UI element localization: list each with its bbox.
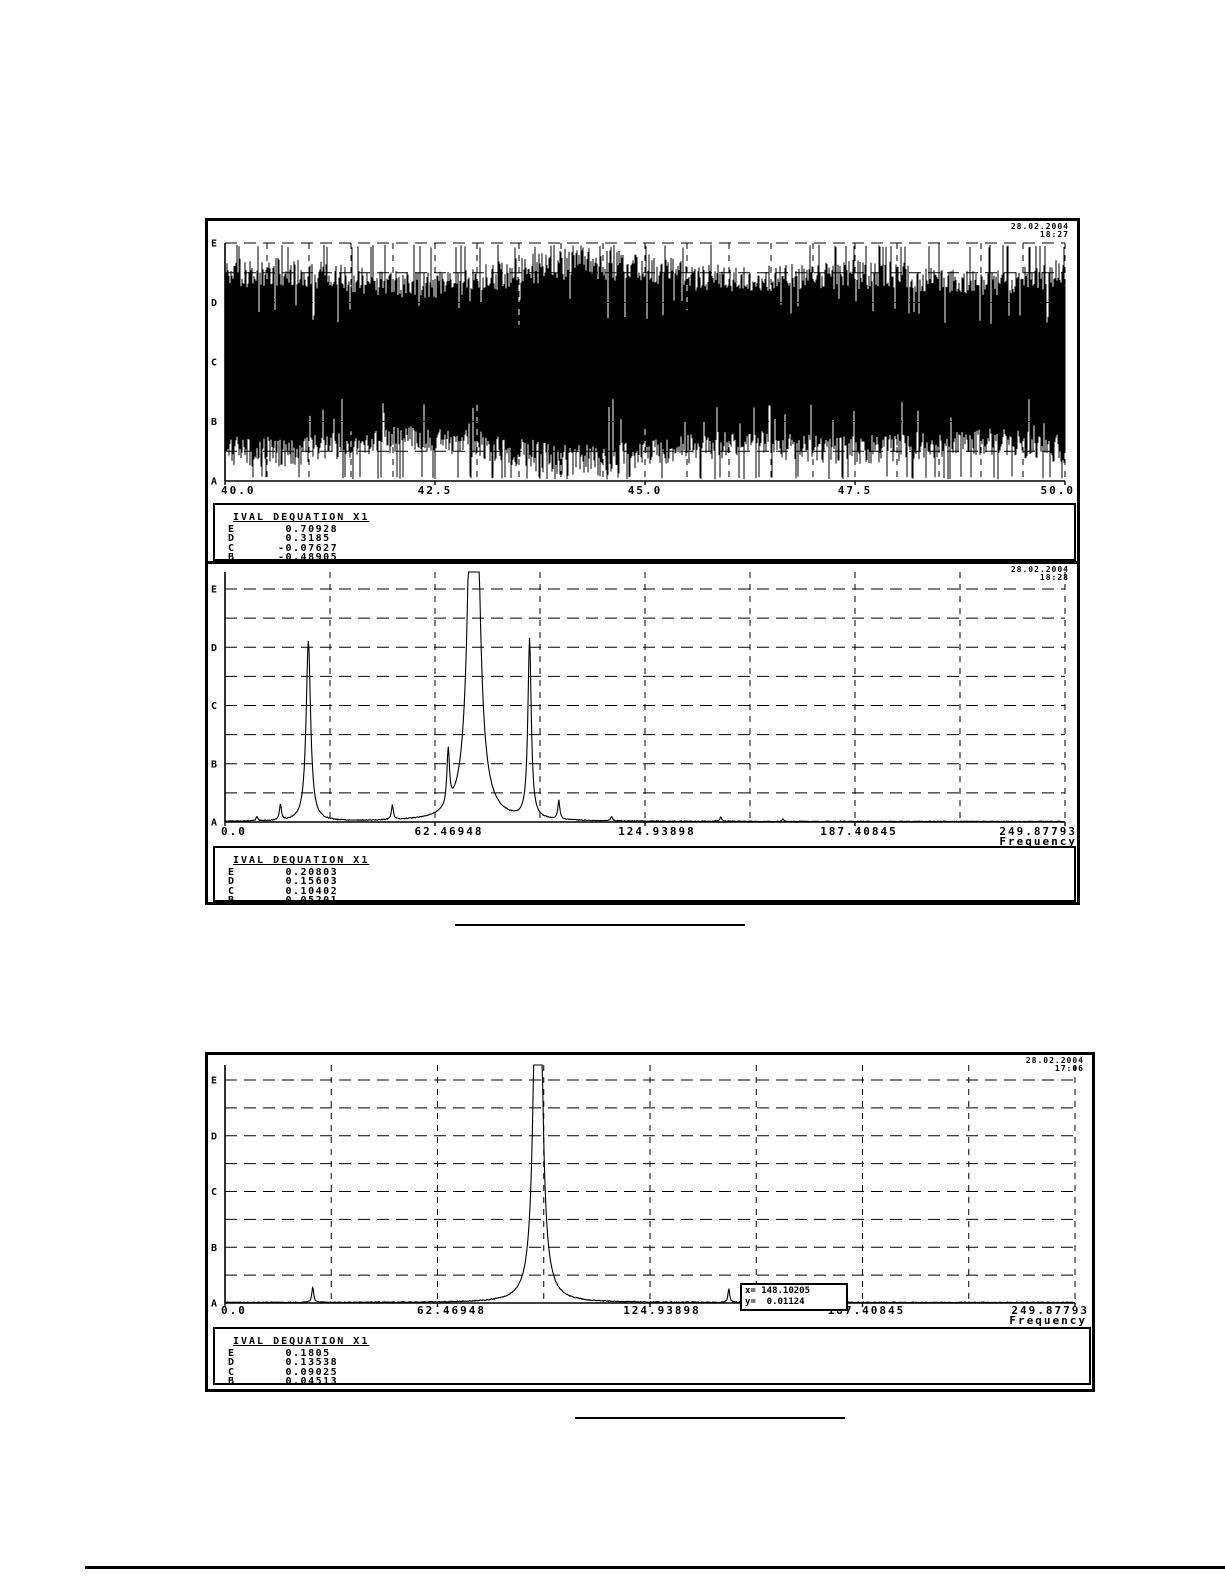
spectrum-chart-1: 0.062.46948124.93898187.40845249.87793ED… — [208, 564, 1077, 848]
legend-title: IVAL DEQUATION X1 — [233, 855, 369, 866]
y-level-label: D — [211, 298, 217, 309]
x-tick-label: 50.0 — [1041, 484, 1076, 497]
legend-row: C 0.09025 — [215, 1368, 1089, 1377]
caption-underline-2 — [575, 1417, 845, 1419]
x-tick-label: 0.0 — [221, 1304, 247, 1317]
caption-underline-1 — [455, 924, 745, 926]
legend-key: C — [215, 544, 278, 553]
y-level-label: A — [211, 477, 217, 488]
cursor-readout-box: x= 148.10205y= 0.01124 — [740, 1283, 848, 1311]
legend-key: C — [215, 1368, 278, 1377]
x-tick-label: 47.5 — [838, 484, 873, 497]
legend-row: E 0.20803 — [215, 868, 1074, 877]
legend-value: 0.04513 — [278, 1377, 338, 1385]
cursor-x-value: x= 148.10205 — [745, 1286, 810, 1296]
legend-row: E 0.70928 — [215, 525, 1074, 534]
spectrum2-frame: 28.02.200417:06 0.062.46948124.93898187.… — [205, 1052, 1095, 1392]
y-level-label: C — [211, 358, 217, 369]
x-tick-label: 40.0 — [221, 484, 256, 497]
legend-row: D 0.3185 — [215, 534, 1074, 543]
cursor-y-value: y= 0.01124 — [745, 1297, 805, 1307]
x-tick-label: 124.93898 — [618, 825, 696, 838]
y-level-label: A — [211, 818, 217, 829]
legend-row: D 0.13538 — [215, 1358, 1089, 1367]
y-level-label: D — [211, 643, 217, 654]
legend-panel3: IVAL DEQUATION X1 E 0.1805 D 0.13538 C 0… — [213, 1327, 1091, 1385]
x-tick-label: 124.93898 — [623, 1304, 701, 1317]
y-level-label: B — [211, 1243, 217, 1254]
document-page: 28.02.200418:27 40.042.545.047.550.0EDCB… — [0, 0, 1225, 1585]
x-tick-label: 62.46948 — [415, 825, 484, 838]
legend-key: D — [215, 534, 278, 543]
y-level-label: A — [211, 1299, 217, 1310]
y-level-label: C — [211, 1187, 217, 1198]
legend-key: E — [215, 525, 278, 534]
legend-key: B — [215, 553, 278, 561]
x-tick-label: 45.0 — [628, 484, 663, 497]
legend-value: 0.05201 — [278, 896, 338, 902]
legend-key: D — [215, 1358, 278, 1367]
legend-value: -0.48905 — [278, 553, 338, 561]
y-level-label: E — [211, 585, 217, 596]
legend-row: D 0.15603 — [215, 877, 1074, 886]
x-axis-title: Frequency — [1009, 1314, 1087, 1327]
x-tick-label: 62.46948 — [417, 1304, 486, 1317]
y-level-label: B — [211, 417, 217, 428]
waveform-chart: 40.042.545.047.550.0EDCBA — [208, 221, 1077, 503]
legend-row: E 0.1805 — [215, 1349, 1089, 1358]
x-tick-label: 187.40845 — [820, 825, 898, 838]
y-level-label: B — [211, 759, 217, 770]
legend-row: B 0.04513 — [215, 1377, 1089, 1385]
legend-key: C — [215, 887, 278, 896]
legend-title: IVAL DEQUATION X1 — [233, 1336, 369, 1347]
legend-row: C 0.10402 — [215, 887, 1074, 896]
legend-key: E — [215, 868, 278, 877]
legend-key: B — [215, 1377, 278, 1385]
legend-panel1: IVAL DEQUATION X1 E 0.70928 D 0.3185 C-0… — [213, 503, 1076, 561]
legend-key: E — [215, 1349, 278, 1358]
page-footer-rule — [85, 1566, 1225, 1569]
legend-panel2: IVAL DEQUATION X1 E 0.20803 D 0.15603 C … — [213, 846, 1076, 902]
x-tick-label: 42.5 — [418, 484, 453, 497]
y-level-label: C — [211, 701, 217, 712]
legend-title: IVAL DEQUATION X1 — [233, 512, 369, 523]
legend-row: B-0.48905 — [215, 553, 1074, 561]
legend-row: C-0.07627 — [215, 544, 1074, 553]
y-level-label: E — [211, 239, 217, 250]
waveform-trace — [226, 245, 1065, 480]
y-level-label: E — [211, 1076, 217, 1087]
spectrum-chart-2: 0.062.46948124.93898187.40845249.87793ED… — [208, 1055, 1092, 1327]
spectrum-trace — [225, 1065, 1075, 1303]
x-tick-label: 0.0 — [221, 825, 247, 838]
legend-key: D — [215, 877, 278, 886]
legend-key: B — [215, 896, 278, 902]
legend-row: B 0.05201 — [215, 896, 1074, 902]
chart-group-frame: 28.02.200418:27 40.042.545.047.550.0EDCB… — [205, 218, 1080, 905]
y-level-label: D — [211, 1131, 217, 1142]
